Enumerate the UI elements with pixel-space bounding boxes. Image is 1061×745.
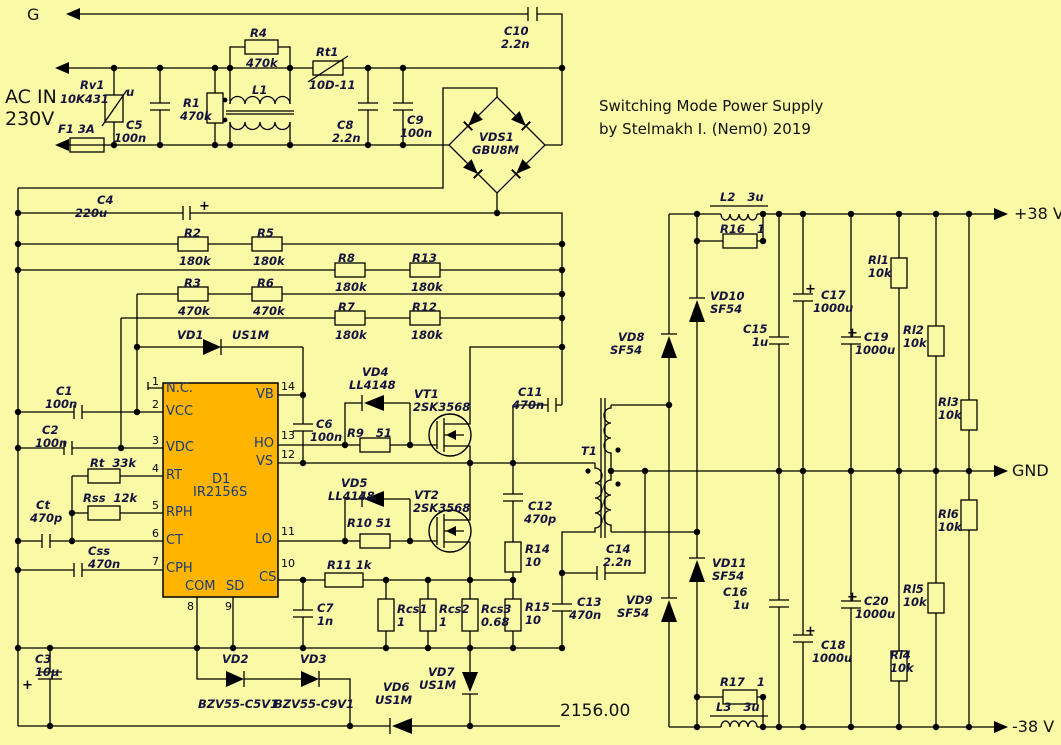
- label-vd6v: US1M: [375, 693, 412, 707]
- label-c6: C6: [316, 417, 332, 431]
- label-n5: 5: [152, 499, 159, 512]
- label-rcs2v: 1: [439, 615, 447, 629]
- label-c20p: +: [847, 590, 858, 605]
- label-n8: 8: [187, 600, 194, 613]
- label-pvcc: VCC: [166, 404, 193, 419]
- ac-input-label-1: AC IN: [5, 86, 57, 108]
- label-vds1: VDS1: [479, 130, 514, 144]
- label-r10: R10 51: [347, 516, 392, 530]
- label-c14v: 2.2n: [603, 555, 632, 569]
- label-pvs: VS: [256, 454, 273, 469]
- label-c9: C9: [407, 113, 423, 127]
- label-n10: 10: [281, 557, 295, 570]
- label-rl6v: 10k: [938, 520, 962, 534]
- label-rv1u: u: [126, 85, 134, 99]
- label-r1: R1: [183, 96, 200, 110]
- label-c20: C20: [864, 594, 888, 608]
- ac-input-label-2: 230V: [5, 108, 54, 130]
- label-vd3v: BZV55-C9V1: [274, 697, 354, 711]
- diode-vd7: [462, 648, 478, 726]
- label-d1v: IR2156S: [193, 485, 247, 500]
- label-c18p: +: [805, 624, 816, 639]
- label-r11: R11 1k: [327, 558, 372, 572]
- bottom-rail: [18, 718, 560, 734]
- label-vd8v: SF54: [610, 343, 642, 357]
- label-l3: L3 3u: [716, 700, 760, 714]
- label-vd10: VD10: [710, 289, 744, 303]
- label-rl2: Rl2: [903, 323, 924, 337]
- row-r8-r13: [18, 263, 562, 277]
- label-c17p: +: [805, 282, 816, 297]
- label-c20v: 1000u: [855, 607, 895, 621]
- label-r16: R16 1: [720, 222, 765, 236]
- label-c15: C15: [743, 322, 767, 336]
- label-pcph: CPH: [166, 561, 193, 576]
- label-pho: HO: [254, 436, 274, 451]
- label-c18: C18: [821, 638, 845, 652]
- label-r15v: 10: [525, 613, 541, 627]
- label-c18v: 1000u: [812, 651, 852, 665]
- label-l2: L2 3u: [720, 190, 764, 204]
- label-pcs: CS: [259, 570, 276, 585]
- label-vds1v: GBU8M: [472, 143, 519, 157]
- schematic-author: by Stelmakh I. (Nem0) 2019: [599, 120, 811, 138]
- label-pcom: COM: [185, 579, 216, 594]
- ground-line: [66, 7, 562, 68]
- label-r6v: 470k: [253, 304, 285, 318]
- label-vd2v: BZV55-C5V1: [198, 697, 278, 711]
- label-c1v: 100n: [45, 397, 77, 411]
- label-rl4: Rl4: [890, 648, 911, 662]
- label-r4: R4: [250, 26, 267, 40]
- label-ctv: 470p: [30, 511, 62, 525]
- label-c5: C5: [126, 118, 142, 132]
- bulk-cap-c4: [18, 206, 562, 405]
- label-r7: R7: [338, 300, 355, 314]
- label-c8: C8: [337, 118, 353, 132]
- label-c16v: 1u: [733, 598, 749, 612]
- label-rt1: Rt1: [316, 45, 338, 59]
- cap-c5: [150, 68, 170, 145]
- label-n13: 13: [281, 429, 295, 442]
- label-vt1: VT1: [414, 387, 439, 401]
- resistor-r1: [207, 68, 223, 145]
- row-r2-r5: [18, 237, 562, 251]
- port-ground-label: GND: [1012, 461, 1049, 480]
- label-t1: T1: [581, 444, 597, 458]
- label-r2v: 180k: [179, 254, 211, 268]
- label-vd11: VD11: [712, 556, 746, 570]
- label-c2v: 100n: [35, 436, 67, 450]
- resistor-rss: [72, 476, 163, 541]
- label-plo: LO: [255, 532, 272, 547]
- gnd-rail: [611, 465, 1008, 477]
- label-c14: C14: [606, 542, 630, 556]
- label-r3v: 470k: [178, 304, 210, 318]
- diode-vd1: [137, 339, 303, 355]
- label-c11: C11: [518, 385, 542, 399]
- label-c16: C16: [723, 585, 747, 599]
- label-c11v: 470n: [512, 398, 544, 412]
- label-vd8: VD8: [618, 330, 644, 344]
- cap-c8: [358, 68, 378, 145]
- label-c13v: 470n: [569, 608, 601, 622]
- label-rcs3v: 0.68: [481, 615, 509, 629]
- label-rl4v: 10k: [890, 661, 914, 675]
- label-c10v: 2.2n: [501, 37, 530, 51]
- label-r14v: 10: [525, 555, 541, 569]
- label-n6: 6: [152, 527, 159, 540]
- shunt-rcs1: [378, 580, 394, 648]
- port-positive-label: +38 V: [1014, 204, 1061, 223]
- label-c3p: +: [22, 678, 33, 693]
- label-cssv: 470n: [88, 557, 120, 571]
- label-css: Css: [88, 544, 110, 558]
- label-rl6: Rl6: [938, 507, 959, 521]
- label-l1: L1: [252, 83, 267, 97]
- label-r3: R3: [184, 276, 201, 290]
- label-rl1: Rl1: [868, 253, 889, 267]
- label-n1: 1: [152, 375, 159, 388]
- label-c4v: 220u: [75, 206, 107, 220]
- label-vd5: VD5: [341, 476, 367, 490]
- label-vd5v: LL4148: [328, 489, 375, 503]
- label-r5v: 180k: [253, 254, 285, 268]
- label-pvdc: VDC: [166, 440, 194, 455]
- label-vd7: VD7: [428, 665, 454, 679]
- label-pvb: VB: [256, 387, 274, 402]
- label-c4: C4: [97, 193, 113, 207]
- label-psd: SD: [226, 579, 244, 594]
- label-r5: R5: [257, 226, 274, 240]
- label-c17v: 1000u: [813, 301, 853, 315]
- label-r2: R2: [184, 226, 201, 240]
- label-vd7v: US1M: [419, 678, 456, 692]
- label-vd4v: LL4148: [349, 378, 396, 392]
- label-vt2: VT2: [414, 488, 439, 502]
- label-r8v: 180k: [335, 280, 367, 294]
- label-f1: F1 3A: [58, 122, 95, 136]
- label-vd6: VD6: [383, 680, 409, 694]
- label-c12v: 470p: [524, 512, 556, 526]
- label-c6v: 100n: [310, 430, 342, 444]
- label-r4v: 470k: [246, 56, 278, 70]
- ground-terminal-label: G: [27, 5, 39, 24]
- label-ct: Ct: [36, 498, 50, 512]
- label-c12: C12: [528, 499, 552, 513]
- schematic-title: Switching Mode Power Supply: [599, 97, 823, 115]
- label-rv1: Rv1: [80, 78, 104, 92]
- label-n3: 3: [152, 434, 159, 447]
- label-c7: C7: [317, 601, 333, 615]
- label-vd4: VD4: [362, 365, 388, 379]
- label-vd2: VD2: [222, 652, 248, 666]
- label-rv1v: 10K431: [60, 92, 109, 106]
- choke-l1: [223, 68, 294, 145]
- ac-line-top: [55, 62, 562, 74]
- label-vt2v: 2SK3568: [413, 501, 470, 515]
- label-rl1v: 10k: [868, 266, 892, 280]
- label-r17: R17 1: [720, 675, 765, 689]
- label-c15v: 1u: [752, 335, 768, 349]
- label-r7v: 180k: [335, 328, 367, 342]
- label-vd10v: SF54: [710, 302, 742, 316]
- label-n14: 14: [281, 380, 295, 393]
- label-vd9: VD9: [626, 593, 652, 607]
- label-vd3: VD3: [300, 652, 326, 666]
- label-c17: C17: [821, 288, 845, 302]
- label-c9v: 100n: [400, 126, 432, 140]
- label-n11: 11: [281, 525, 295, 538]
- label-c5v: 100n: [114, 131, 146, 145]
- label-c19v: 1000u: [855, 343, 895, 357]
- label-r1v: 470k: [180, 109, 212, 123]
- label-c3: C3: [35, 652, 51, 666]
- label-r14: R14: [525, 542, 550, 556]
- doc-number: 2156.00: [560, 701, 630, 721]
- label-vd1v: US1M: [232, 328, 269, 342]
- label-r9: R9 51: [347, 426, 392, 440]
- label-c7v: 1n: [317, 614, 333, 628]
- label-rss: Rss 12k: [83, 491, 137, 505]
- label-rcs2: Rcs2: [439, 602, 470, 616]
- label-c19p: +: [847, 326, 858, 341]
- label-n12: 12: [281, 448, 295, 461]
- label-rt1v: 10D-11: [309, 78, 356, 92]
- label-c8v: 2.2n: [332, 131, 361, 145]
- label-rl2v: 10k: [903, 336, 927, 350]
- label-c3v: 10µ: [35, 665, 59, 679]
- label-pct: CT: [166, 533, 183, 548]
- resistor-rt: [72, 469, 163, 483]
- label-pnc: N.C.: [166, 381, 193, 396]
- label-c1: C1: [56, 384, 72, 398]
- label-n7: 7: [152, 555, 159, 568]
- label-c10: C10: [504, 24, 528, 38]
- label-n2: 2: [152, 398, 159, 411]
- label-vd11v: SF54: [712, 569, 744, 583]
- cap-c7: [293, 580, 313, 648]
- label-n9: 9: [225, 600, 232, 613]
- label-vt1v: 2SK3568: [413, 400, 470, 414]
- label-rl3v: 10k: [938, 408, 962, 422]
- label-r13: R13: [412, 251, 437, 265]
- mosfet-vt2: [429, 463, 471, 580]
- label-r13v: 180k: [411, 280, 443, 294]
- label-vd9v: SF54: [617, 606, 649, 620]
- label-vd1: VD1: [177, 328, 203, 342]
- label-c13: C13: [577, 595, 601, 609]
- label-prph: RPH: [166, 505, 193, 520]
- label-rt: Rt 33k: [90, 456, 136, 470]
- label-n4: 4: [152, 462, 159, 475]
- label-rl5v: 10k: [903, 595, 927, 609]
- label-r15: R15: [525, 600, 550, 614]
- label-c19: C19: [864, 330, 888, 344]
- label-rcs1: Rcs1: [397, 602, 428, 616]
- port-negative-label: -38 V: [1012, 717, 1054, 736]
- schematic-page: G AC IN 230V Switching Mode Power Supply…: [0, 0, 1061, 745]
- label-r12v: 180k: [411, 328, 443, 342]
- label-prt: RT: [166, 468, 182, 483]
- label-r8: R8: [338, 251, 355, 265]
- label-rl5: Rl5: [903, 582, 924, 596]
- label-c2: C2: [42, 423, 58, 437]
- zener-row: [197, 648, 350, 726]
- label-rcs1v: 1: [397, 615, 405, 629]
- label-r6: R6: [257, 276, 274, 290]
- label-c4p: +: [199, 199, 210, 214]
- cs-row: [278, 573, 513, 587]
- schematic-canvas: [0, 0, 1061, 745]
- label-rcs3: Rcs3: [481, 602, 512, 616]
- label-rl3: Rl3: [938, 395, 959, 409]
- cap-c1: [18, 405, 163, 419]
- label-r12: R12: [412, 300, 437, 314]
